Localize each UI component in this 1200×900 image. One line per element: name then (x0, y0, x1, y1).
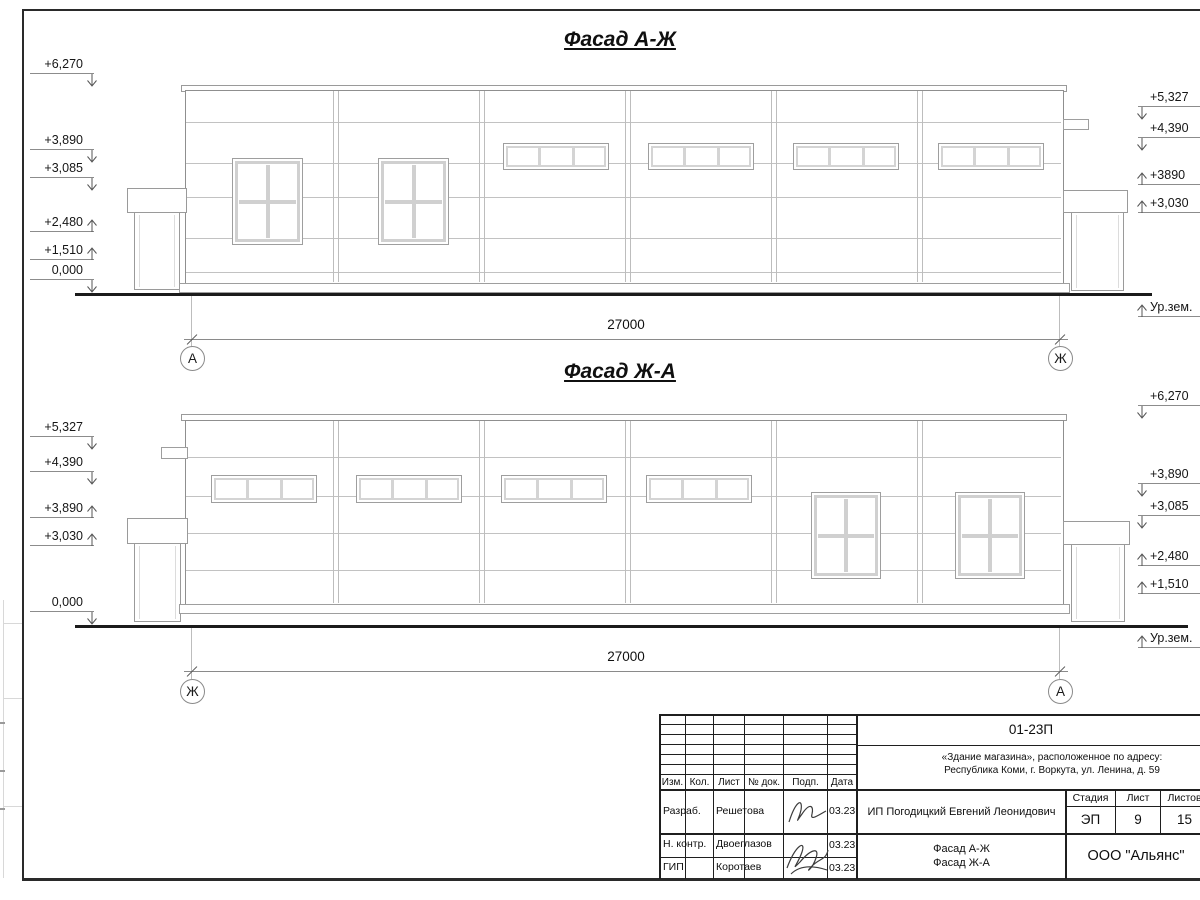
row-name: Двоеглазов (716, 838, 772, 850)
margin-stamp-line (3, 698, 22, 699)
window-strip (648, 143, 754, 170)
col-header-kol: Кол. (686, 777, 713, 789)
elevation-mark: +3,890 (30, 133, 94, 150)
facade1-panel-joint-h (186, 197, 1061, 198)
elevation-arrow-up-icon (1136, 581, 1148, 594)
titleblock-line (659, 744, 857, 745)
sheet-title-line1: Фасад А-Ж (860, 843, 1063, 856)
row-date: 03.23 (829, 805, 855, 817)
elevation-arrow-up-icon (1136, 200, 1148, 213)
titleblock-line (713, 714, 714, 879)
facade2-right-porch-canopy (1063, 521, 1130, 545)
elevation-arrow-down-icon (86, 612, 98, 625)
window-strip (646, 475, 752, 503)
col-header-data: Дата (828, 777, 856, 789)
facade2-panel-joint-v (917, 421, 923, 603)
project-address-line1: «Здание магазина», расположенное по адре… (904, 752, 1200, 764)
facade1-panel-joint-h (186, 238, 1061, 239)
elevation-value: +3,030 (1150, 196, 1189, 210)
elevation-mark: +1,510 (1138, 577, 1200, 594)
elevation-mark: +6,270 (30, 57, 94, 74)
facade1-panel-joint-v (479, 91, 485, 282)
window-strip (211, 475, 317, 503)
axis-bubble: А (180, 346, 205, 371)
facade2-panel-joint-h (186, 496, 1061, 497)
window-large (811, 492, 881, 579)
ground-level-label: Ур.зем. (1150, 631, 1192, 645)
elevation-arrow-up-icon (86, 219, 98, 232)
facade1-panel-joint-h (186, 272, 1061, 273)
elevation-arrow-up-icon (1136, 553, 1148, 566)
facade2-panel-joint-v (625, 421, 631, 603)
margin-stamp-text-stub (0, 808, 5, 810)
row-date: 03.23 (829, 839, 855, 851)
elevation-value: +5,327 (44, 420, 83, 434)
elevation-mark: +2,480 (30, 215, 94, 232)
window-large (232, 158, 303, 245)
dimension-line (184, 339, 1068, 340)
elevation-value: 0,000 (52, 263, 83, 277)
elevation-arrow-down-icon (1136, 107, 1148, 120)
axis-bubble: Ж (180, 679, 205, 704)
elevation-mark: 0,000 (30, 595, 94, 612)
elevation-mark: +3,030 (1138, 196, 1200, 213)
window-large (378, 158, 449, 245)
row-role: Разраб. (663, 805, 701, 817)
elevation-mark: +6,270 (1138, 389, 1200, 406)
sheets-label: Листов (1161, 792, 1200, 804)
ground-level-label: Ур.зем. (1150, 300, 1192, 314)
margin-stamp-text-stub (0, 722, 5, 724)
elevation-value: +6,270 (44, 57, 83, 71)
facade2-panel-joint-v (479, 421, 485, 603)
elevation-arrow-up-icon (86, 533, 98, 546)
elevation-value: 0,000 (52, 595, 83, 609)
elevation-arrow-up-icon (1136, 172, 1148, 185)
facade2-title: Фасад Ж-А (420, 360, 820, 384)
facade1-right-porch-column (1071, 212, 1124, 291)
axis-bubble: А (1048, 679, 1073, 704)
margin-stamp-line (3, 600, 4, 878)
facade1-ground-line (75, 293, 1152, 296)
titleblock-line (659, 789, 1200, 791)
elevation-mark: +3,085 (1138, 499, 1200, 516)
titleblock-line (659, 724, 857, 725)
elevation-value: +3,890 (44, 501, 83, 515)
col-header-list: Лист (714, 777, 744, 789)
drawing-sheet: Фасад А-Ж +6,270 +3,890 +3,085 +2,480 +1… (0, 0, 1200, 900)
titleblock-line (858, 745, 1200, 746)
elevation-value: +3,085 (1150, 499, 1189, 513)
elevation-mark: +2,480 (1138, 549, 1200, 566)
facade1-panel-joint-v (625, 91, 631, 282)
facade2-panel-joint-v (771, 421, 777, 603)
elevation-arrow-down-icon (86, 74, 98, 87)
elevation-arrow-down-icon (1136, 516, 1148, 529)
dimension-value: 27000 (192, 649, 1060, 664)
elevation-mark: +4,390 (30, 455, 94, 472)
facade1-plinth (179, 283, 1070, 293)
signature-scribble (783, 836, 831, 878)
elevation-value: +3,890 (44, 133, 83, 147)
elevation-mark: +3890 (1138, 168, 1200, 185)
elevation-mark: +5,327 (30, 420, 94, 437)
elevation-value: +4,390 (44, 455, 83, 469)
elevation-mark: 0,000 (30, 263, 94, 280)
elevation-arrow-up-icon (86, 247, 98, 260)
facade1-left-porch-column (134, 212, 180, 290)
facade2-panel-joint-h (186, 533, 1061, 534)
col-header-podp: Подп. (784, 777, 827, 789)
facade1-panel-joint-v (771, 91, 777, 282)
elevation-value: +1,510 (1150, 577, 1189, 591)
frame-bottom (23, 878, 1200, 881)
axis-bubble: Ж (1048, 346, 1073, 371)
facade1-panel-joint-h (186, 122, 1061, 123)
company-name: ООО "Альянс" (1066, 848, 1200, 864)
titleblock-line (685, 714, 686, 879)
frame-top (23, 9, 1200, 11)
elevation-mark: +3,085 (30, 161, 94, 178)
sheet-label: Лист (1116, 792, 1160, 804)
titleblock-line (1066, 806, 1200, 807)
elevation-arrow-down-icon (1136, 138, 1148, 151)
facade2-panel-joint-h (186, 457, 1061, 458)
ground-level-mark: Ур.зем. (1138, 631, 1200, 648)
facade2-left-porch-column (134, 543, 181, 622)
facade1-panel-joint-v (333, 91, 339, 282)
dimension-line (184, 671, 1068, 672)
elevation-mark: +4,390 (1138, 121, 1200, 138)
row-role: Н. контр. (663, 838, 706, 850)
stage-label: Стадия (1066, 792, 1115, 804)
window-strip (356, 475, 462, 503)
elevation-mark: +3,890 (1138, 467, 1200, 484)
elevation-value: +2,480 (1150, 549, 1189, 563)
facade1-roof-ledge (1063, 119, 1089, 130)
titleblock-line (659, 764, 857, 765)
facade1-right-porch-canopy (1063, 190, 1128, 213)
titleblock-line (659, 734, 857, 735)
titleblock-line (659, 774, 857, 775)
dimension-value: 27000 (192, 317, 1060, 332)
elevation-arrow-up-icon (86, 505, 98, 518)
window-strip (501, 475, 607, 503)
margin-stamp-line (3, 623, 22, 624)
facade1-title: Фасад А-Ж (420, 28, 820, 52)
col-header-izm: Изм. (660, 777, 685, 789)
facade2-ground-line (75, 625, 1188, 628)
elevation-value: +3,890 (1150, 467, 1189, 481)
titleblock-line (659, 833, 1200, 835)
elevation-mark: +5,327 (1138, 90, 1200, 107)
project-address-line2: Республика Коми, г. Воркута, ул. Ленина,… (904, 765, 1200, 777)
client-name: ИП Погодицкий Евгений Леонидович (860, 806, 1063, 819)
facade2-plinth (179, 604, 1070, 614)
facade2-left-porch-canopy (127, 518, 188, 544)
window-strip (503, 143, 609, 170)
frame-left (22, 9, 24, 881)
col-header-doc: № док. (745, 777, 783, 789)
signature-scribble (786, 794, 828, 830)
row-name: Коротаев (716, 861, 761, 873)
elevation-arrow-down-icon (1136, 406, 1148, 419)
doc-number: 01-23П (857, 722, 1200, 737)
elevation-value: +5,327 (1150, 90, 1189, 104)
row-date: 03.23 (829, 862, 855, 874)
titleblock-line (659, 714, 661, 879)
titleblock-line (659, 714, 1200, 716)
elevation-arrow-down-icon (1136, 484, 1148, 497)
elevation-value: +6,270 (1150, 389, 1189, 403)
facade1-left-porch-canopy (127, 188, 187, 213)
elevation-value: +3,085 (44, 161, 83, 175)
margin-stamp-line (3, 806, 22, 807)
elevation-arrow-down-icon (86, 472, 98, 485)
row-name: Решетова (716, 805, 764, 817)
margin-stamp-text-stub (0, 770, 5, 772)
elevation-value: +4,390 (1150, 121, 1189, 135)
window-large (955, 492, 1025, 579)
elevation-arrow-down-icon (86, 280, 98, 293)
elevation-mark: +3,030 (30, 529, 94, 546)
elevation-value: +3890 (1150, 168, 1185, 182)
elevation-arrow-up-icon (1136, 304, 1148, 317)
elevation-value: +1,510 (44, 243, 83, 257)
elevation-mark: +3,890 (30, 501, 94, 518)
ground-level-mark: Ур.зем. (1138, 300, 1200, 317)
sheets-total: 15 (1161, 812, 1200, 827)
elevation-value: +3,030 (44, 529, 83, 543)
facade1-panel-joint-h (186, 163, 1061, 164)
titleblock-line (659, 754, 857, 755)
titleblock-line (744, 714, 745, 879)
row-role: ГИП (663, 861, 684, 873)
elevation-arrow-down-icon (86, 437, 98, 450)
elevation-value: +2,480 (44, 215, 83, 229)
elevation-mark: +1,510 (30, 243, 94, 260)
elevation-arrow-up-icon (1136, 635, 1148, 648)
titleblock-line (856, 714, 858, 879)
sheet-title-line2: Фасад Ж-А (860, 857, 1063, 870)
window-strip (793, 143, 899, 170)
stage-value: ЭП (1066, 812, 1115, 827)
facade1-panel-joint-v (917, 91, 923, 282)
facade2-panel-joint-h (186, 570, 1061, 571)
sheet-number: 9 (1116, 812, 1160, 827)
elevation-arrow-down-icon (86, 178, 98, 191)
window-strip (938, 143, 1044, 170)
facade2-panel-joint-v (333, 421, 339, 603)
facade2-right-porch-column (1071, 544, 1125, 622)
facade2-roof-ledge (161, 447, 188, 459)
